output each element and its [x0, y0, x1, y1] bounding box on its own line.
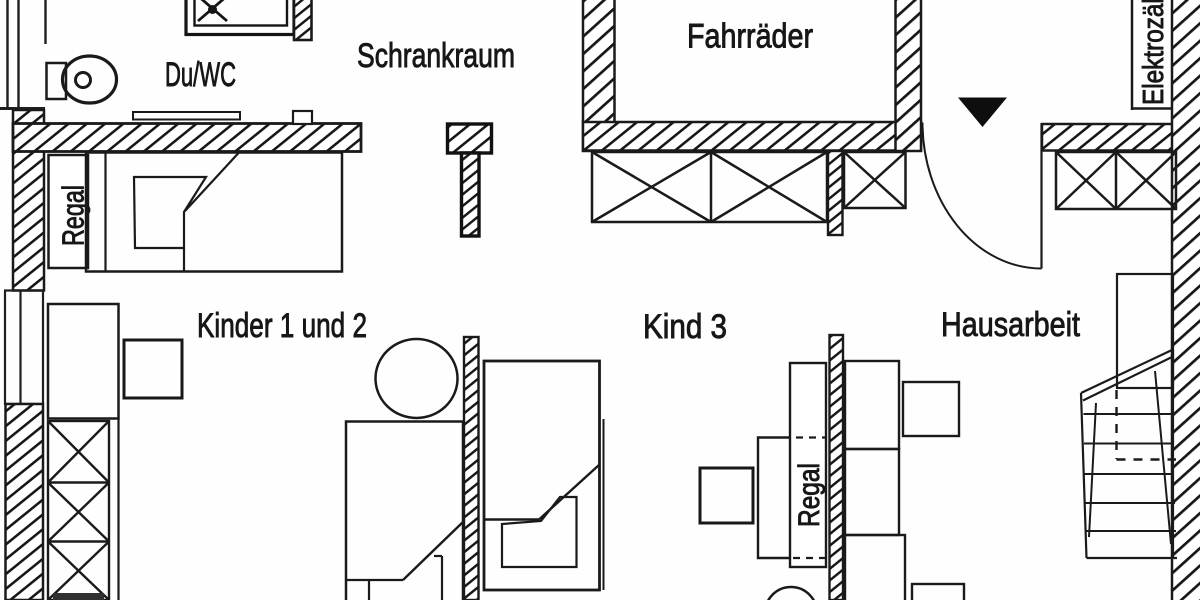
svg-text:Kinder 1 und 2: Kinder 1 und 2	[197, 307, 367, 345]
svg-text:Hausarbeit: Hausarbeit	[941, 306, 1080, 344]
svg-text:Kind 3: Kind 3	[643, 308, 727, 346]
svg-text:Schrankraum: Schrankraum	[357, 37, 515, 75]
svg-text:Fahrräder: Fahrräder	[687, 18, 813, 56]
svg-text:Regal: Regal	[793, 463, 826, 527]
svg-text:Elektrozähler: Elektrozähler	[1138, 0, 1170, 105]
svg-text:Du/WC: Du/WC	[165, 56, 236, 94]
